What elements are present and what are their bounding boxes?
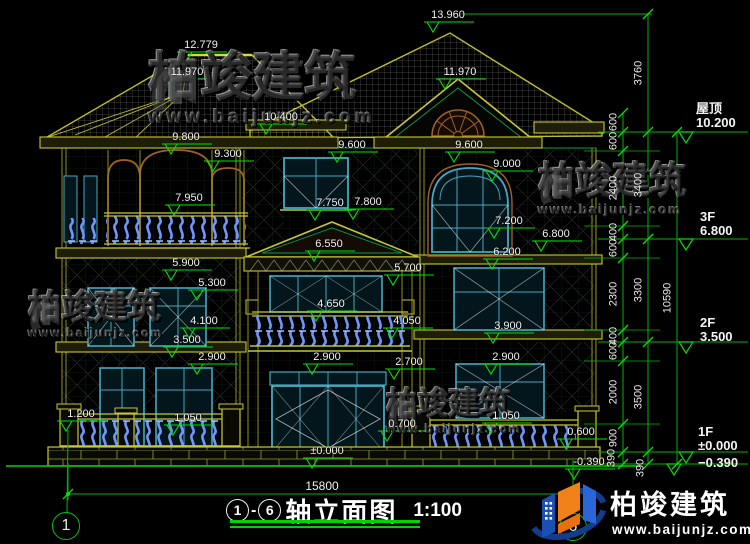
level-value: 3.500 [700, 330, 733, 344]
brand-logo: 柏竣建筑 www.baijunjz.com [528, 480, 750, 542]
elevation-label: 7.800 [354, 197, 382, 208]
elevation-label: ±0.000 [310, 446, 344, 457]
entrance-door [270, 372, 386, 452]
title-name: 轴立面图 [285, 492, 397, 529]
title-underline [230, 520, 420, 523]
elevation-label: 4.050 [393, 316, 421, 327]
elevation-label: 4.650 [317, 299, 345, 310]
dimension-label: 2000 [609, 380, 620, 404]
level-value: −0.390 [698, 456, 738, 470]
dimension-label: 10590 [663, 283, 674, 314]
elevation-label: 9.800 [172, 132, 200, 143]
dimension-label: 600 [609, 342, 620, 360]
elevation-label: 1.050 [174, 413, 202, 424]
elevation-label: 9.300 [214, 149, 242, 160]
level-value: 6.800 [700, 224, 733, 238]
dimension-label: 600 [609, 132, 620, 150]
title-axis-start: 1 [226, 499, 249, 522]
dimension-label: 600 [609, 113, 620, 131]
elevation-label: 9.600 [338, 140, 366, 151]
axis-bubble-1: 1 [52, 512, 80, 540]
dimension-label: 2400 [609, 176, 620, 200]
title-underline [230, 526, 420, 528]
elevation-label: 2.900 [198, 352, 226, 363]
elevation-label: 0.700 [388, 419, 416, 430]
level-name: 1F [698, 425, 738, 439]
elevation-label: 6.800 [542, 229, 570, 240]
dimension-label: 600 [609, 239, 620, 257]
elevation-label: -0.390 [573, 457, 604, 468]
elevation-label: 1.050 [492, 411, 520, 422]
level-name: 3F [700, 210, 733, 224]
elevation-label: 5.900 [172, 258, 200, 269]
dimension-label: 900 [609, 429, 620, 447]
level-3f: 3F 6.800 [700, 210, 733, 238]
brand-logo-icon [528, 480, 612, 542]
level-name: 2F [700, 316, 733, 330]
dimension-label: 3500 [634, 385, 645, 409]
title-dash: - [251, 502, 256, 520]
window-3f-arch [428, 164, 512, 256]
elevation-label: 10.400 [264, 112, 298, 123]
elevation-label: 11.970 [171, 67, 204, 78]
elevation-label: 7.750 [316, 198, 344, 209]
level-2f: 2F 3.500 [700, 316, 733, 344]
elevation-label: 4.100 [190, 316, 218, 327]
elevation-label: 7.950 [175, 193, 203, 204]
elevation-label: 6.200 [493, 247, 521, 258]
dimension-label: 2300 [609, 282, 620, 306]
elevation-label: 5.700 [394, 263, 422, 274]
elevation-label: 5.300 [198, 278, 226, 289]
elevation-label: 2.700 [395, 357, 423, 368]
dimension-label: 390 [607, 449, 618, 467]
dimension-label: 390 [636, 459, 647, 477]
level-value: ±0.000 [698, 439, 738, 453]
level-1f: 1F ±0.000 [698, 425, 738, 453]
level-name: 屋顶 [696, 102, 736, 116]
elevation-label: 9.000 [493, 159, 521, 170]
title-scale: 1:100 [413, 500, 462, 522]
drawing-title: 1 - 6 轴立面图 1:100 [226, 492, 462, 529]
dimension-label: 3300 [634, 278, 645, 302]
level-minus: −0.390 [698, 456, 738, 470]
elevation-label: 3.500 [173, 335, 201, 346]
title-axis-end: 6 [258, 499, 281, 522]
logo-url: www.baijunjz.com [612, 522, 750, 537]
elevation-label: 2.900 [492, 352, 520, 363]
level-roof: 屋顶 10.200 [696, 102, 736, 130]
logo-brand: 柏竣建筑 [610, 492, 730, 519]
elevation-label: 13.960 [431, 10, 465, 21]
elevation-label: 2.900 [313, 352, 341, 363]
elevation-label: 3.900 [494, 321, 522, 332]
elevation-label: 12.779 [184, 40, 218, 51]
elevation-label: 11.970 [444, 67, 477, 78]
dimension-label: 3760 [634, 61, 645, 85]
elevation-label: 0.600 [567, 427, 595, 438]
dimension-label: 3400 [634, 173, 645, 197]
elevation-label: 9.600 [455, 140, 483, 151]
elevation-label: 6.550 [315, 239, 343, 250]
elevation-label: 1.200 [67, 409, 95, 420]
cad-elevation-sheet: 柏竣建筑 www.baijunjz.com 柏竣建筑 www.baijunjz.… [0, 0, 750, 544]
elevation-marker [424, 22, 474, 32]
overall-width-dim: 15800 [305, 481, 338, 492]
elevation-label: 7.200 [495, 216, 523, 227]
level-value: 10.200 [696, 116, 736, 130]
